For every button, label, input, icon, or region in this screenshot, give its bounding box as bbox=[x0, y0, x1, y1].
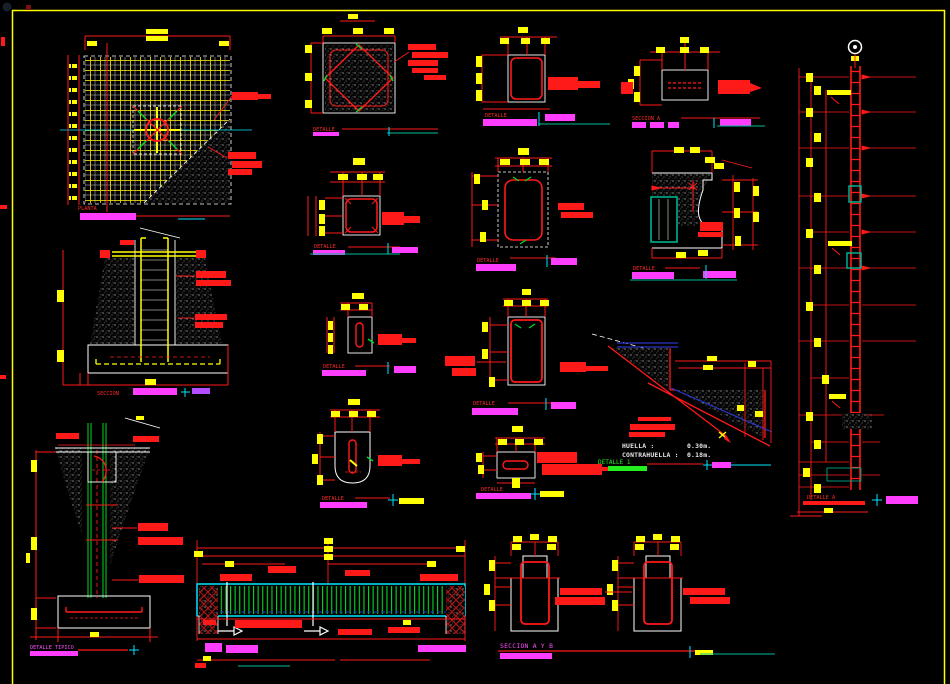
detalle-text: DETALLE bbox=[485, 113, 507, 119]
detalle-label: DETALLE bbox=[630, 265, 737, 280]
slab-rebar bbox=[617, 343, 678, 347]
annotation-blocks bbox=[378, 334, 416, 345]
detalle-label: DETALLE bbox=[472, 398, 576, 415]
detalle-1-text: DETALLE 1 bbox=[598, 459, 631, 466]
detalle-a-label: DETALLE A bbox=[790, 494, 918, 516]
section-label-text: SECCION bbox=[97, 391, 119, 397]
beam-section-a bbox=[484, 534, 560, 631]
detalle-text: DETALLE bbox=[473, 401, 495, 407]
detalle-tipico-label: DETALLE TIPICO bbox=[30, 645, 139, 656]
detail-column-elevation: DETALLE A bbox=[790, 41, 918, 517]
detalle-1-label: DETALLE 1 bbox=[598, 459, 771, 471]
detail-column-square: DETALLE bbox=[305, 14, 448, 136]
annotation-blocks bbox=[698, 222, 723, 237]
detalle-tipico-text: DETALLE TIPICO bbox=[30, 645, 74, 651]
detalle-label: DETALLE bbox=[476, 255, 577, 271]
end-column-right bbox=[446, 586, 465, 634]
leader-lines-right bbox=[862, 75, 916, 475]
detail-footing-section: SECCION bbox=[57, 228, 231, 397]
seccion-ayb-text: SECCION A Y B bbox=[500, 643, 553, 650]
detail-column-square-small: DETALLE bbox=[308, 158, 420, 255]
dimensions bbox=[621, 37, 720, 105]
beam-section-b bbox=[607, 534, 683, 631]
rebar-rows bbox=[668, 83, 702, 88]
detail-footing-plan: PLANTA bbox=[60, 29, 271, 220]
detail-beam-elevation bbox=[194, 538, 466, 668]
plan-label-text: PLANTA bbox=[78, 206, 98, 212]
annotation-blocks bbox=[378, 455, 420, 466]
stirrup-tie bbox=[511, 58, 542, 99]
detail-column-rect-3: DETALLE bbox=[445, 289, 608, 415]
annotation-blocks bbox=[629, 417, 675, 437]
section-outline bbox=[508, 317, 545, 385]
huella-value: 0.30m. bbox=[687, 442, 711, 450]
corner-mark bbox=[26, 5, 31, 10]
dimension-lines-left bbox=[799, 68, 849, 516]
detalle-text: DETALLE bbox=[322, 496, 344, 502]
seccion-ayb-label: SECCION A Y B bbox=[498, 643, 775, 659]
detalle-label: DETALLE bbox=[320, 494, 424, 508]
rebar-slot bbox=[503, 461, 528, 469]
annotation-blocks bbox=[558, 203, 593, 218]
end-column-left bbox=[199, 586, 218, 634]
stirrup-tie bbox=[505, 180, 542, 240]
annotation-blocks bbox=[555, 588, 730, 605]
section-outline bbox=[662, 70, 708, 100]
detail-beam-sections: SECCION A Y B bbox=[484, 534, 775, 659]
detail-column-rect-1: DETALLE bbox=[476, 27, 610, 126]
formwork-box bbox=[651, 197, 677, 242]
annotation-blocks bbox=[382, 212, 420, 225]
detalle-label: DETALLE bbox=[476, 487, 564, 500]
cad-drawing-canvas: PLANTA SECCION bbox=[0, 0, 950, 684]
stirrups bbox=[206, 586, 444, 614]
footing-rebar bbox=[66, 607, 142, 612]
detail-stair: HUELLA : 0.30m. CONTRAHUELLA : 0.18m. DE… bbox=[592, 334, 772, 471]
contrahuella-value: 0.18m. bbox=[687, 451, 711, 459]
stirrup-tie bbox=[521, 562, 549, 624]
detalle-label: DETALLE bbox=[310, 243, 418, 255]
splice-markers bbox=[827, 90, 852, 408]
detail-slot-small: DETALLE bbox=[322, 293, 416, 376]
annotation-blocks bbox=[548, 77, 600, 90]
detalle-text: DETALLE bbox=[314, 244, 336, 250]
green-tick bbox=[368, 339, 374, 343]
stirrup-tie bbox=[511, 320, 542, 382]
detalle-text: DETALLE bbox=[323, 364, 345, 370]
annotation-blocks-top bbox=[220, 566, 458, 581]
plan-label: PLANTA bbox=[78, 206, 230, 220]
dimensions bbox=[482, 289, 549, 387]
corner-smudge bbox=[3, 3, 12, 12]
detail-column-footing: DETALLE TIPICO bbox=[30, 416, 184, 656]
detail-horizontal-section: DETALLE bbox=[476, 426, 612, 500]
section-outline bbox=[511, 556, 558, 631]
detalle-label: DETALLE bbox=[322, 362, 416, 376]
detail-seccion-a: SECCION A bbox=[621, 37, 765, 128]
edge-mark bbox=[0, 205, 7, 209]
detalle-text: DETALLE bbox=[633, 266, 655, 272]
detail-corner: DETALLE bbox=[630, 147, 759, 280]
detalle-label: DETALLE bbox=[313, 127, 438, 136]
seccion-a-text: SECCION A bbox=[632, 116, 661, 122]
edge-mark bbox=[26, 553, 30, 563]
axis-bubble bbox=[849, 41, 862, 69]
detalle-label: DETALLE bbox=[483, 109, 610, 126]
detalle-a-text: DETALLE A bbox=[807, 495, 836, 501]
top-band bbox=[100, 228, 206, 258]
seccion-a-label: SECCION A bbox=[632, 116, 765, 128]
annotation-blocks bbox=[445, 356, 608, 376]
step-hatch-1 bbox=[612, 348, 670, 390]
annotation-blocks bbox=[394, 44, 448, 80]
detail-column-rect-2: DETALLE bbox=[472, 148, 593, 271]
edge-mark bbox=[1, 37, 5, 46]
contrahuella-label: CONTRAHUELLA : bbox=[622, 451, 679, 459]
rebar-slot bbox=[349, 440, 356, 473]
edge-mark bbox=[0, 375, 6, 379]
detalle-text: DETALLE bbox=[477, 258, 499, 264]
section-outline bbox=[508, 55, 545, 102]
huella-label: HUELLA : bbox=[622, 442, 654, 450]
rebar-slot bbox=[356, 323, 363, 347]
beam-label bbox=[205, 643, 466, 653]
dimensions bbox=[327, 293, 372, 354]
soil-hatch-left bbox=[90, 258, 135, 345]
section-label: SECCION bbox=[97, 388, 210, 397]
dimensions bbox=[472, 148, 552, 247]
cad-sheet: PLANTA SECCION bbox=[0, 0, 950, 684]
dimensions-lowest bbox=[195, 656, 430, 668]
annotation-blocks bbox=[718, 80, 762, 94]
footing-body bbox=[88, 345, 228, 373]
detalle-text: DETALLE bbox=[481, 487, 503, 493]
detail-u-section: DETALLE bbox=[312, 399, 424, 508]
step-dimensions-text: HUELLA : 0.30m. CONTRAHUELLA : 0.18m. bbox=[622, 442, 711, 459]
